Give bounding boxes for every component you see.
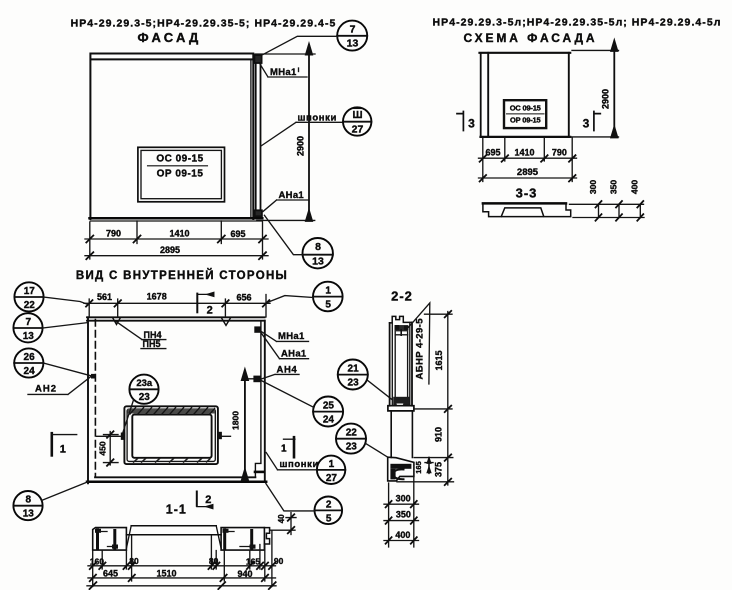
svg-text:1410: 1410	[169, 229, 189, 239]
svg-text:2900: 2900	[296, 136, 306, 156]
svg-text:24: 24	[323, 415, 335, 426]
svg-text:1: 1	[60, 444, 66, 456]
svg-text:2: 2	[205, 494, 211, 506]
svg-text:2-2: 2-2	[391, 289, 413, 304]
svg-text:23: 23	[346, 442, 358, 453]
svg-text:НР4-29.29.3-5;НР4-29.29.35-5;: НР4-29.29.3-5;НР4-29.29.35-5; НР4-29.29.…	[71, 18, 337, 30]
svg-text:МНа1: МНа1	[278, 331, 305, 342]
svg-text:790: 790	[552, 148, 567, 158]
svg-text:165: 165	[246, 556, 260, 566]
svg-text:23а: 23а	[136, 378, 153, 389]
svg-text:7: 7	[350, 24, 356, 36]
svg-text:АНа1: АНа1	[281, 349, 307, 360]
svg-text:350: 350	[396, 510, 411, 520]
svg-text:13: 13	[23, 331, 35, 342]
svg-text:13: 13	[347, 38, 359, 50]
svg-text:3: 3	[468, 117, 475, 131]
svg-text:645: 645	[103, 568, 118, 578]
svg-text:21: 21	[348, 364, 360, 375]
svg-text:656: 656	[236, 292, 251, 302]
svg-text:27: 27	[352, 124, 364, 136]
svg-text:1-1: 1-1	[166, 503, 187, 517]
svg-text:3-3: 3-3	[516, 186, 538, 201]
svg-text:2: 2	[207, 305, 213, 317]
svg-text:ОС 09-15: ОС 09-15	[510, 104, 541, 113]
svg-text:940: 940	[237, 569, 252, 579]
svg-text:1: 1	[329, 459, 335, 470]
svg-text:790: 790	[106, 229, 121, 239]
svg-text:ОС 09-15: ОС 09-15	[156, 154, 203, 165]
svg-text:2895: 2895	[160, 245, 180, 255]
svg-text:ВИД С ВНУТРЕННЕЙ СТОРОНЫ: ВИД С ВНУТРЕННЕЙ СТОРОНЫ	[76, 269, 288, 282]
svg-text:375: 375	[433, 462, 443, 477]
svg-text:8: 8	[315, 241, 321, 253]
svg-text:ОР 09-15: ОР 09-15	[510, 116, 541, 125]
svg-text:300: 300	[588, 180, 598, 194]
svg-text:910: 910	[434, 427, 444, 442]
svg-text:22: 22	[24, 300, 36, 311]
svg-text:1510: 1510	[156, 568, 176, 578]
svg-text:17: 17	[24, 286, 36, 297]
svg-text:2: 2	[326, 499, 332, 510]
svg-text:300: 300	[396, 494, 411, 504]
svg-text:2895: 2895	[517, 167, 539, 178]
svg-text:3: 3	[583, 117, 590, 131]
svg-text:1410: 1410	[514, 147, 534, 157]
svg-text:26: 26	[24, 352, 36, 363]
svg-text:5: 5	[325, 300, 331, 311]
svg-text:27: 27	[326, 473, 338, 484]
svg-text:695: 695	[485, 148, 500, 158]
svg-text:24: 24	[24, 366, 36, 377]
svg-text:23: 23	[139, 392, 151, 403]
svg-text:400: 400	[630, 180, 640, 194]
svg-text:1: 1	[325, 286, 331, 297]
svg-text:80: 80	[129, 556, 139, 566]
svg-text:7: 7	[26, 317, 32, 328]
svg-text:АБНР 4-29-5: АБНР 4-29-5	[414, 318, 425, 380]
svg-text:23: 23	[348, 378, 360, 389]
svg-text:40: 40	[277, 514, 286, 523]
svg-text:450: 450	[97, 441, 107, 455]
svg-text:1800: 1800	[230, 411, 240, 430]
svg-text:НР4-29.29.3-5л;НР4-29.29.35-5л: НР4-29.29.3-5л;НР4-29.29.35-5л; НР4-29.2…	[433, 17, 722, 29]
svg-text:АН2: АН2	[35, 384, 57, 395]
svg-text:Ш: Ш	[352, 110, 362, 121]
svg-text:СХЕМА ФАСАДА: СХЕМА ФАСАДА	[463, 31, 597, 45]
svg-text:ПН5: ПН5	[143, 339, 161, 349]
svg-text:25: 25	[323, 401, 335, 412]
svg-text:АНа1: АНа1	[279, 190, 305, 201]
svg-text:80: 80	[209, 556, 219, 566]
svg-text:ФАСАД: ФАСАД	[137, 30, 201, 45]
svg-text:13: 13	[312, 256, 324, 268]
svg-text:22: 22	[346, 428, 358, 439]
svg-text:160: 160	[90, 556, 104, 566]
svg-text:90: 90	[274, 556, 284, 566]
svg-text:165: 165	[414, 461, 423, 474]
svg-text:350: 350	[609, 180, 619, 194]
svg-text:шпонки: шпонки	[280, 459, 319, 470]
svg-text:1615: 1615	[434, 350, 444, 370]
svg-text:8: 8	[26, 495, 32, 506]
svg-text:13: 13	[23, 509, 35, 520]
svg-text:ОР 09-15: ОР 09-15	[157, 169, 204, 180]
svg-text:400: 400	[395, 530, 410, 540]
svg-text:561: 561	[97, 292, 112, 302]
svg-text:1678: 1678	[147, 291, 167, 301]
svg-text:2900: 2900	[601, 89, 611, 109]
svg-text:5: 5	[326, 513, 332, 524]
svg-text:695: 695	[230, 229, 245, 239]
svg-text:1: 1	[281, 444, 287, 455]
